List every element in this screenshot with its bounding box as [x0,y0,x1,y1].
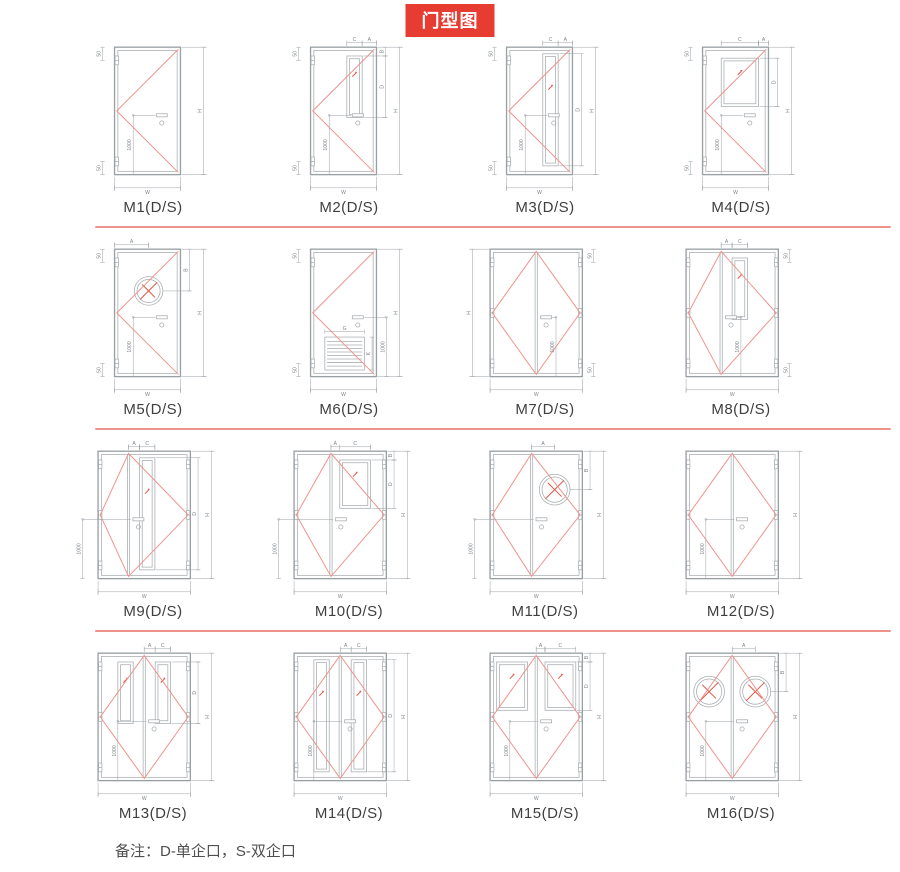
svg-text:C: C [549,37,553,43]
svg-text:D: D [575,108,581,112]
door-label: M15(D/S) [511,805,579,822]
door-label: M10(D/S) [315,603,383,620]
svg-text:C: C [353,441,357,447]
svg-text:W: W [142,796,147,802]
svg-text:D: D [192,512,198,516]
svg-text:1000: 1000 [735,341,741,352]
door-label: M4(D/S) [711,199,770,216]
svg-text:D: D [388,714,394,718]
door-drawing-m2: 1000HW5050CABD [261,34,437,201]
svg-text:A: A [541,441,545,447]
door-label: M5(D/S) [123,401,182,418]
door-diagram-m7: 1000HW5050 M7(D/S) [447,236,643,424]
door-label: M13(D/S) [119,805,187,822]
door-diagram-m6: 1000HW5050GK M6(D/S) [251,236,447,424]
svg-text:A: A [742,643,746,649]
svg-text:B: B [780,670,786,674]
svg-text:1000: 1000 [77,543,83,554]
svg-text:A: A [344,643,348,649]
svg-text:D: D [771,80,777,84]
svg-text:1000: 1000 [469,543,475,554]
svg-text:D: D [584,684,590,688]
svg-text:H: H [198,109,204,113]
footer-note: 备注：D-单企口，S-双企口 [115,840,900,861]
svg-text:A: A [368,37,372,43]
svg-text:1000: 1000 [127,139,133,150]
svg-text:B: B [379,49,385,53]
door-row-3: 1000HWACD M9(D/S) 1000HWACBD M10(D/S) 10… [55,438,840,626]
svg-text:C: C [161,643,165,649]
svg-text:A: A [762,37,766,43]
svg-text:W: W [145,190,150,196]
svg-text:1000: 1000 [323,139,329,150]
svg-text:A: A [132,441,136,447]
svg-text:W: W [534,392,539,398]
door-drawing-m1: 1000HW5050 [65,34,241,201]
svg-text:1000: 1000 [127,341,133,352]
svg-text:H: H [793,715,799,719]
svg-text:W: W [534,594,539,600]
svg-text:B: B [183,268,189,272]
door-drawing-m11: 1000HWAB [457,438,633,605]
door-diagram-m9: 1000HWACD M9(D/S) [55,438,251,626]
svg-text:D: D [388,482,394,486]
door-label: M12(D/S) [707,603,775,620]
door-drawing-m10: 1000HWACBD [261,438,437,605]
door-drawing-m9: 1000HWACD [65,438,241,605]
svg-text:1000: 1000 [715,139,721,150]
door-diagram-m1: 1000HW5050 M1(D/S) [55,34,251,222]
door-label: M2(D/S) [319,199,378,216]
svg-text:H: H [597,513,603,517]
svg-text:50: 50 [488,165,494,171]
svg-text:H: H [198,311,204,315]
svg-text:H: H [394,109,400,113]
svg-text:50: 50 [96,165,102,171]
row-divider-3 [95,630,891,632]
door-label: M16(D/S) [707,805,775,822]
svg-text:50: 50 [783,253,789,259]
door-row-4: 1000HWACD M13(D/S) 1000HWACD M14(D/S) 10… [55,640,840,828]
svg-text:1000: 1000 [700,745,706,756]
row-divider-2 [95,428,891,430]
svg-text:50: 50 [587,253,593,259]
svg-text:W: W [341,190,346,196]
row-divider-1 [95,226,891,228]
svg-text:C: C [357,643,361,649]
door-diagram-m3: 1000HW5050CAD M3(D/S) [447,34,643,222]
svg-text:50: 50 [292,367,298,373]
svg-text:W: W [730,392,735,398]
svg-text:W: W [733,190,738,196]
door-row-2: 1000HW5050AB M5(D/S) 1000HW5050GK M6(D/S… [55,236,840,424]
svg-text:50: 50 [292,253,298,259]
svg-text:D: D [379,85,385,89]
svg-text:C: C [559,643,563,649]
door-label: M9(D/S) [123,603,182,620]
door-drawing-m15: 1000HWACBD [457,640,633,807]
svg-text:A: A [564,37,568,43]
door-diagram-m16: 1000HWAB M16(D/S) [643,640,839,828]
svg-text:50: 50 [783,367,789,373]
svg-text:G: G [343,326,347,332]
svg-text:W: W [338,796,343,802]
svg-text:H: H [401,715,407,719]
door-row-1: 1000HW5050 M1(D/S) 1000HW5050CABD M2(D/S… [55,34,840,222]
door-drawing-m8: 1000W5050AC [653,236,829,403]
svg-text:B: B [388,453,394,457]
svg-text:H: H [205,513,211,517]
door-diagram-m11: 1000HWAB M11(D/S) [447,438,643,626]
door-grid: 1000HW5050 M1(D/S) 1000HW5050CABD M2(D/S… [0,0,900,828]
svg-text:A: A [130,239,134,245]
svg-text:W: W [142,594,147,600]
svg-text:H: H [467,311,473,315]
svg-text:C: C [738,37,742,43]
door-diagram-m12: 1000HW M12(D/S) [643,438,839,626]
svg-text:50: 50 [96,367,102,373]
svg-text:50: 50 [292,165,298,171]
door-drawing-m14: 1000HWACD [261,640,437,807]
door-diagram-m10: 1000HWACBD M10(D/S) [251,438,447,626]
svg-text:H: H [394,311,400,315]
svg-text:50: 50 [587,367,593,373]
door-drawing-m6: 1000HW5050GK [261,236,437,403]
page-title: 门型图 [406,4,495,37]
door-diagram-m4: 1000HW5050CAD M4(D/S) [643,34,839,222]
door-diagram-m8: 1000W5050AC M8(D/S) [643,236,839,424]
svg-text:W: W [730,796,735,802]
svg-text:50: 50 [292,51,298,57]
svg-text:H: H [590,109,596,113]
door-label: M11(D/S) [511,603,578,620]
door-diagram-m5: 1000HW5050AB M5(D/S) [55,236,251,424]
svg-text:1000: 1000 [700,543,706,554]
svg-text:H: H [786,109,792,113]
door-label: M7(D/S) [515,401,574,418]
door-diagram-m15: 1000HWACBD M15(D/S) [447,640,643,828]
svg-text:50: 50 [96,51,102,57]
svg-text:C: C [738,239,742,245]
svg-text:C: C [353,37,357,43]
svg-text:D: D [192,691,198,695]
svg-text:H: H [597,715,603,719]
svg-text:1000: 1000 [273,543,279,554]
svg-text:B: B [584,655,590,659]
svg-text:W: W [145,392,150,398]
svg-text:1000: 1000 [504,745,510,756]
door-drawing-m3: 1000HW5050CAD [457,34,633,201]
door-label: M3(D/S) [515,199,574,216]
svg-text:1000: 1000 [380,341,386,352]
svg-text:A: A [725,239,729,245]
svg-text:1000: 1000 [519,139,525,150]
svg-text:W: W [338,594,343,600]
svg-text:W: W [341,392,346,398]
door-drawing-m13: 1000HWACD [65,640,241,807]
door-drawing-m5: 1000HW5050AB [65,236,241,403]
door-drawing-m4: 1000HW5050CAD [653,34,829,201]
svg-text:H: H [401,513,407,517]
svg-text:50: 50 [488,51,494,57]
svg-text:A: A [148,643,152,649]
door-label: M8(D/S) [711,401,770,418]
svg-text:1000: 1000 [308,745,314,756]
svg-text:C: C [145,441,149,447]
svg-text:B: B [584,468,590,472]
svg-text:W: W [730,594,735,600]
door-label: M14(D/S) [315,805,383,822]
svg-text:50: 50 [96,253,102,259]
svg-text:W: W [537,190,542,196]
svg-text:K: K [366,351,372,355]
svg-text:A: A [334,441,338,447]
door-drawing-m7: 1000HW5050 [457,236,633,403]
svg-text:1000: 1000 [550,341,556,352]
svg-text:W: W [534,796,539,802]
door-diagram-m2: 1000HW5050CABD M2(D/S) [251,34,447,222]
door-diagram-m14: 1000HWACD M14(D/S) [251,640,447,828]
door-drawing-m12: 1000HW [653,438,829,605]
svg-text:50: 50 [684,165,690,171]
door-label: M1(D/S) [123,199,182,216]
door-label: M6(D/S) [319,401,378,418]
svg-text:H: H [205,715,211,719]
door-diagram-m13: 1000HWACD M13(D/S) [55,640,251,828]
svg-text:50: 50 [684,51,690,57]
svg-text:1000: 1000 [112,745,118,756]
svg-text:H: H [793,513,799,517]
svg-text:A: A [539,643,543,649]
door-drawing-m16: 1000HWAB [653,640,829,807]
